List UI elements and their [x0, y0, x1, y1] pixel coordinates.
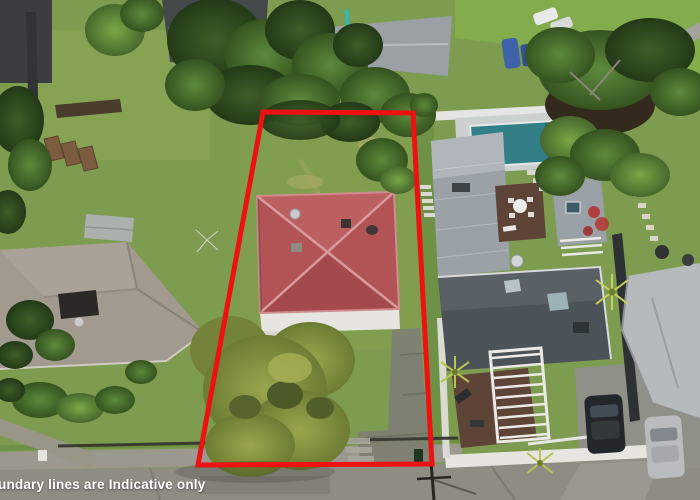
chair: [528, 212, 534, 217]
big-tree: [525, 27, 595, 83]
gate-post: [38, 450, 47, 461]
deck-furniture: [470, 420, 484, 427]
tree: [8, 139, 52, 191]
fire-pit: [655, 245, 669, 259]
car-silver: [644, 415, 685, 479]
skylight: [504, 279, 521, 293]
foliage-shadow: [306, 397, 334, 419]
tree: [165, 59, 225, 111]
chair: [509, 213, 515, 218]
roof-vent: [291, 243, 302, 252]
foliage-shadow: [267, 381, 303, 409]
top-left-dark-roof: [0, 0, 52, 83]
chair: [527, 197, 533, 202]
satellite-dish: [511, 255, 523, 267]
chimney: [58, 290, 99, 319]
roof-vent: [366, 225, 378, 235]
outdoor-table: [513, 199, 527, 213]
roof-box: [573, 322, 589, 333]
shrub: [35, 329, 75, 361]
aerial-property-photo: undary lines are Indicative only: [0, 0, 700, 500]
bougainvillea: [588, 206, 600, 218]
garage-skylight: [452, 183, 470, 192]
play-slide-teal: [345, 10, 349, 27]
studio-skylight: [566, 202, 580, 213]
tree-overhang: [260, 100, 340, 140]
aerial-scene: [0, 0, 700, 500]
garden-shrub: [125, 360, 157, 384]
chimney: [341, 219, 351, 228]
roof-satellite-dish: [290, 209, 300, 219]
skylight: [547, 292, 569, 311]
tree: [333, 23, 383, 67]
outdoor-table-round: [682, 254, 694, 266]
chair: [508, 198, 514, 203]
bougainvillea: [583, 226, 593, 236]
garden-shrub: [95, 386, 135, 414]
bougainvillea: [595, 217, 609, 231]
satellite-dish: [75, 318, 84, 327]
foliage-shadow: [229, 395, 261, 419]
foliage-highlight: [268, 353, 312, 383]
car-dark: [584, 394, 626, 455]
tree: [610, 153, 670, 197]
lot-steps: [344, 438, 374, 462]
watermark-text: undary lines are Indicative only: [0, 477, 205, 492]
lot-tree: [380, 166, 416, 194]
wheelie-bin: [414, 449, 423, 462]
upper-deck: [495, 182, 546, 242]
tree: [535, 156, 585, 196]
subject-house-red-roof: [257, 192, 400, 340]
